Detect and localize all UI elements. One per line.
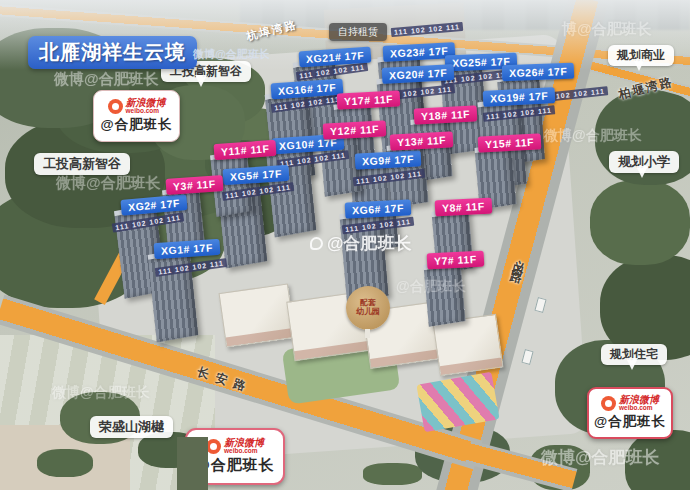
weibo-eye-pupil <box>605 400 612 407</box>
green-overlay-rectangle <box>177 437 208 490</box>
weibo-eye-icon <box>108 99 123 114</box>
place-label-rongsheng-shanhuyue: 荣盛山湖樾 <box>90 416 173 438</box>
weibo-domain: weibo.com <box>224 448 264 455</box>
weibo-logo-row: 新浪微博 weibo.com <box>108 98 166 115</box>
weibo-eye-icon <box>310 237 323 250</box>
badge-line2: 幼儿园 <box>356 308 380 317</box>
weibo-handle: @合肥班长 <box>100 116 172 134</box>
weibo-eye-icon <box>206 439 221 454</box>
place-label-planned-residential: 规划住宅 <box>601 344 667 365</box>
weibo-eye-icon <box>601 396 616 411</box>
place-label-planned-commercial: 规划商业 <box>608 45 674 66</box>
building-label: Y15# 11F <box>478 133 542 152</box>
weibo-logo-row: 新浪微博 weibo.com <box>206 438 264 455</box>
project-title: 北雁湖祥生云境 <box>28 36 197 69</box>
watermark: 微博@合肥班长 <box>52 384 150 402</box>
weibo-card-bottomright: 新浪微博 weibo.com @合肥班长 <box>587 387 673 439</box>
weibo-eye-pupil <box>210 443 217 450</box>
aerial-site-map: 配套 幼儿园 北雁湖祥生云境 微博@合肥班长 新浪微博 weibo.com @合… <box>0 0 690 490</box>
building-label: Y13# 11F <box>390 131 454 150</box>
weibo-domain: weibo.com <box>126 108 166 115</box>
watermark: 博@合肥班长 <box>562 20 652 39</box>
watermark: 微博@合肥班长 <box>56 174 161 193</box>
watermark: 微博@合肥班长 <box>541 446 660 469</box>
building-label: XG26# 17F <box>502 63 575 82</box>
building-label: Y17# 11F <box>337 90 401 109</box>
weibo-eye-pupil <box>112 103 119 110</box>
watermark: 微博@合肥班长 <box>544 127 642 145</box>
kindergarten-building <box>219 283 296 347</box>
building-label: Y8# 11F <box>435 198 492 217</box>
title-credit: 微博@合肥班长 <box>193 47 270 62</box>
building-label: Y12# 11F <box>323 120 387 139</box>
watermark: @合肥班长 <box>396 278 466 296</box>
watermark: 微博@合肥班长 <box>54 70 159 89</box>
weibo-logo-row: 新浪微博 weibo.com <box>601 395 659 412</box>
weibo-handle: @合肥班长 <box>594 413 666 431</box>
place-label-gongtou-tech-valley-left: 工投高新智谷 <box>34 153 130 175</box>
building-label: Y18# 11F <box>414 105 478 124</box>
weibo-card-topleft: 新浪微博 weibo.com @合肥班长 <box>93 90 180 142</box>
place-label-planned-primary-school: 规划小学 <box>609 151 679 173</box>
residential-tower <box>148 248 199 343</box>
watermark: @合肥班长 <box>310 232 412 255</box>
building-label: Y7# 11F <box>427 251 484 270</box>
place-label-self-hold-rental: 自持租赁 <box>329 23 387 41</box>
kindergarten-badge: 配套 幼儿园 <box>346 286 390 330</box>
weibo-domain: weibo.com <box>619 405 659 412</box>
